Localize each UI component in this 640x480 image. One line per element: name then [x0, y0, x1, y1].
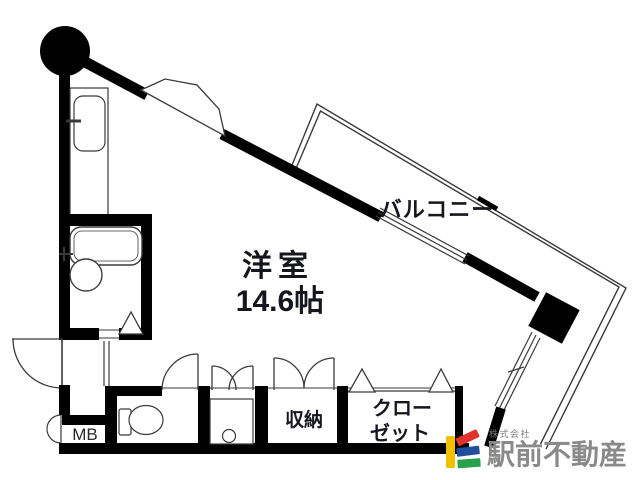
balcony-label: バルコニー — [380, 197, 495, 222]
closet-label-line1: クロー — [372, 397, 432, 420]
storage-label: 収納 — [285, 408, 323, 431]
room-name-label: 洋室 — [242, 249, 314, 283]
logo-yellow-bar — [446, 436, 455, 468]
room-size-label: 14.6帖 — [236, 285, 324, 318]
logo-green-bar — [457, 458, 481, 468]
toilet-bowl — [129, 406, 163, 435]
floorplan-drawing: 洋室 14.6帖 バルコニー 収納 クロー ゼット MB 株式会社 駅前不動産 — [0, 0, 640, 480]
closet-label-line2: ゼット — [370, 421, 430, 445]
meter-box-label: MB — [72, 425, 98, 444]
kitchen-sink — [74, 96, 105, 151]
washer-drain — [223, 430, 236, 443]
company-name-text: 駅前不動産 — [487, 438, 627, 470]
left-outer-wall — [59, 64, 70, 340]
wash-basin — [70, 259, 102, 291]
floorplan-canvas: 洋室 14.6帖 バルコニー 収納 クロー ゼット MB 株式会社 駅前不動産 — [0, 0, 640, 480]
company-prefix-text: 株式会社 — [489, 428, 531, 439]
